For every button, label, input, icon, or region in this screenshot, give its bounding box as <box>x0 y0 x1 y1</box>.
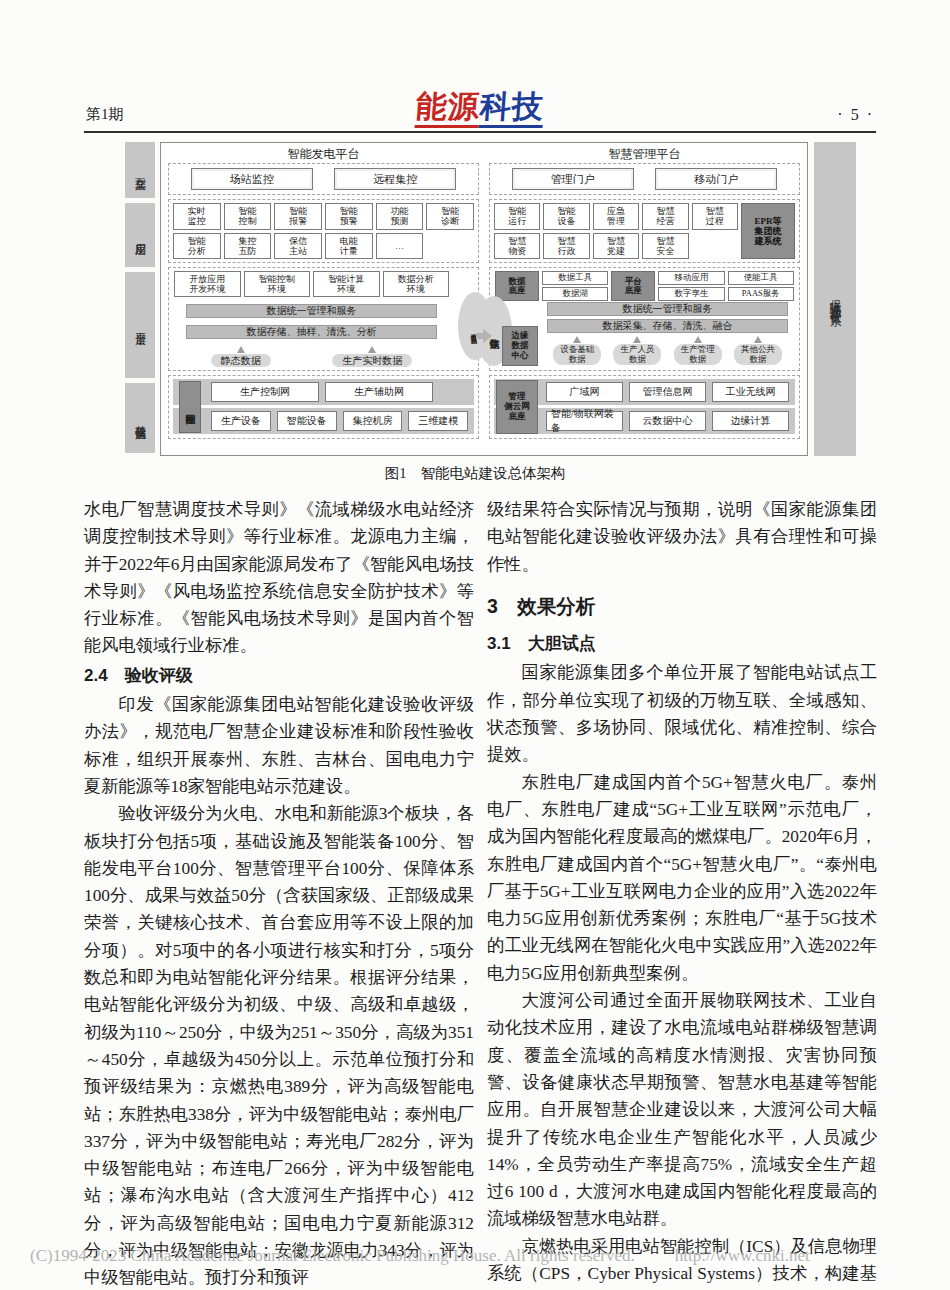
management-platform-title: 智慧管理平台 <box>489 146 800 163</box>
generation-platform-group: 开放应用 开发环境 智能控制 环境 智能计算 环境 数据分析 环境 数据统一管理… <box>168 267 479 371</box>
enabling-tools-stack: 使能工具 PAAS服务 <box>728 271 794 301</box>
generation-infrastructure-group: 控制区 生产控制网 生产辅助网 生产设备 智能设备 集控机房 三维建模 <box>168 375 479 439</box>
section-heading-3-1: 3.1 大胆试点 <box>487 630 877 657</box>
data-storage-bar: 数据存储、抽样、清洗、分析 <box>186 325 437 339</box>
app-box: 应急 管理 <box>593 203 639 230</box>
env-box: 智能控制 环境 <box>244 271 311 297</box>
page-number: · 5 · <box>837 106 874 124</box>
generation-interaction-group: 场站监控 远程集控 <box>168 163 479 195</box>
network-band: 生产控制网 生产辅助网 <box>173 379 474 405</box>
network-band: 广域网 管理信息网 工业无线网 <box>494 379 795 405</box>
app-box: 智慧 过程 <box>692 203 738 230</box>
source-item: 静态数据 <box>211 346 271 367</box>
management-platform-half: 智慧管理平台 管理门户 移动门户 智能 运行 智能 设备 应急 管理 智慧 经营… <box>489 146 800 452</box>
stack-box: 移动应用 <box>658 271 724 285</box>
data-management-bar: 数据统一管理和服务 <box>186 304 437 318</box>
equipment-band: 生产设备 智能设备 集控机房 三维建模 <box>173 408 474 434</box>
equipment-band: 智能/物联网装备 云数据中心 边缘计算 <box>494 408 795 434</box>
architecture-panel: 智能发电平台 场站监控 远程集控 实时 监控 智能 控制 智能 报警 智能 预警… <box>160 142 808 456</box>
net-box: 智能/物联网装备 <box>546 411 623 431</box>
generation-source-row: 静态数据 生产实时数据 <box>180 346 443 367</box>
production-mgmt-data-pill: 生产管理 数据 <box>674 344 722 365</box>
layer-interaction: 交互层 <box>125 142 155 198</box>
data-collection-bar: 数据采集、存储、清洗、融合 <box>547 319 788 333</box>
paragraph: 水电厂智慧调度技术导则》《流域梯级水电站经济调度控制技术导则》等行业标准。龙源电… <box>84 496 474 660</box>
management-portal-box: 管理门户 <box>512 168 634 190</box>
app-box: 智能 运行 <box>494 203 540 230</box>
right-text-column: 级结果符合实际情况与预期，说明《国家能源集团电站智能化建设验收评级办法》具有合理… <box>487 496 877 1290</box>
data-base-box: 数据 底座 <box>495 271 539 301</box>
architecture-figure: 交互层 应用层 平台层 基础设施层 智能发电平台 场站监控 远程集控 实时 监控… <box>125 142 856 456</box>
app-box: 智慧 安全 <box>642 233 688 260</box>
guarantee-evaluation-system-bar: 保障体系和评价体系 <box>814 142 856 456</box>
net-box: 管理信息网 <box>629 382 706 402</box>
up-arrow-icon <box>237 346 245 353</box>
other-public-data-pill: 其他公共 数据 <box>734 344 782 365</box>
app-box: 集控 五防 <box>224 233 272 260</box>
stack-box: 数据湖 <box>542 287 608 301</box>
figure-caption-title: 智能电站建设总体架构 <box>420 465 565 481</box>
cnki-url: http://www.cnki.net <box>675 1246 810 1266</box>
data-flow-arrow-icon <box>476 329 492 343</box>
cnki-footer: (C)1994-2023 China Academic Journal Elec… <box>30 1246 920 1266</box>
management-infrastructure-group: 管理 侧云网 底座 广域网 管理信息网 工业无线网 智能/物联网装备 云数据中心… <box>489 375 800 439</box>
generation-platform-title: 智能发电平台 <box>168 146 479 163</box>
copyright-text: (C)1994-2023 China Academic Journal Elec… <box>30 1246 635 1266</box>
remote-control-box: 远程集控 <box>334 168 456 190</box>
management-platform-content: 数据统一管理和服务 数据采集、存储、清洗、融合 设备基础 数据 生产人员 数据 <box>541 302 794 365</box>
issue-number: 第1期 <box>86 105 124 124</box>
app-box: 功能 预测 <box>376 203 424 230</box>
layer-platform: 平台层 <box>125 272 155 378</box>
station-monitoring-box: 场站监控 <box>191 168 313 190</box>
net-box: 云数据中心 <box>629 411 706 431</box>
layer-application: 应用层 <box>125 203 155 267</box>
left-text-column: 水电厂智慧调度技术导则》《流域梯级水电站经济调度控制技术导则》等行业标准。龙源电… <box>84 496 474 1290</box>
net-box: 三维建模 <box>408 411 468 431</box>
platform-base-box: 平台 底座 <box>611 271 655 301</box>
app-box: 智能 控制 <box>224 203 272 230</box>
app-box: 智慧 物资 <box>494 233 540 260</box>
net-box: 广域网 <box>546 382 623 402</box>
net-box: 生产控制网 <box>211 382 319 402</box>
generation-application-group: 实时 监控 智能 控制 智能 报警 智能 预警 功能 预测 智能 诊断 智能 分… <box>168 199 479 263</box>
figure-caption-label: 图1 <box>385 465 407 481</box>
app-box: 智慧 经营 <box>642 203 688 230</box>
app-box: 智能 诊断 <box>426 203 474 230</box>
app-box: 实时 监控 <box>173 203 221 230</box>
environment-row: 开放应用 开发环境 智能控制 环境 智能计算 环境 数据分析 环境 <box>174 271 449 297</box>
source-item: 其他公共 数据 <box>734 336 782 365</box>
edge-data-center-box: 边缘 数据 中心 <box>502 326 538 366</box>
paragraph: 印发《国家能源集团电站智能化建设验收评级办法》，规范电厂智慧企业建设标准和阶段性… <box>84 691 474 800</box>
up-arrow-icon <box>633 336 641 343</box>
up-arrow-icon <box>573 336 581 343</box>
stack-box: 数据工具 <box>542 271 608 285</box>
management-application-group: 智能 运行 智能 设备 应急 管理 智慧 经营 智慧 过程 EPR等 集团统 建… <box>489 199 800 263</box>
epr-group-systems-box: EPR等 集团统 建系统 <box>741 203 795 259</box>
data-management-bar: 数据统一管理和服务 <box>547 302 788 316</box>
app-box: 智能 预警 <box>325 203 373 230</box>
app-box: 电能 计量 <box>325 233 373 260</box>
mobile-apps-stack: 移动应用 数字孪生 <box>658 271 724 301</box>
env-box: 数据分析 环境 <box>383 271 450 297</box>
source-item: 生产实时数据 <box>332 346 412 367</box>
app-box: 保信 主站 <box>274 233 322 260</box>
section-heading-2-4: 2.4 验收评级 <box>84 662 474 689</box>
stack-box: PAAS服务 <box>728 287 794 301</box>
layer-infrastructure: 基础设施层 <box>125 383 155 453</box>
app-box: 智能 设备 <box>543 203 589 230</box>
net-box: 集控机房 <box>343 411 403 431</box>
device-base-data-pill: 设备基础 数据 <box>553 344 601 365</box>
generation-platform-content: 开放应用 开发环境 智能控制 环境 智能计算 环境 数据分析 环境 数据统一管理… <box>174 271 449 367</box>
journal-logo-tech: 科技 <box>479 89 546 128</box>
journal-logo: 能源科技 <box>415 86 546 128</box>
paragraph: 级结果符合实际情况与预期，说明《国家能源集团电站智能化建设验收评级办法》具有合理… <box>487 496 877 578</box>
management-cloud-base-box: 管理 侧云网 底座 <box>496 380 538 434</box>
source-item: 生产管理 数据 <box>674 336 722 365</box>
stack-box: 使能工具 <box>728 271 794 285</box>
up-arrow-icon <box>694 336 702 343</box>
layer-labels-column: 交互层 应用层 平台层 基础设施层 <box>125 142 155 456</box>
app-box: 智能 分析 <box>173 233 221 260</box>
app-box-ellipsis: … <box>376 233 424 260</box>
net-box: 生产设备 <box>211 411 271 431</box>
up-arrow-icon <box>754 336 762 343</box>
control-zone-box: 控制区 <box>179 381 201 433</box>
up-arrow-icon <box>368 346 376 353</box>
production-staff-data-pill: 生产人员 数据 <box>613 344 661 365</box>
static-data-pill: 静态数据 <box>211 354 271 367</box>
platform-base-row: 数据 底座 数据工具 数据湖 平台 底座 移动应用 数字孪生 使能工具 PAAS… <box>495 271 794 299</box>
paragraph: 大渡河公司通过全面开展物联网技术、工业自动化技术应用，建设了水电流域电站群梯级智… <box>487 987 877 1233</box>
net-box: 智能设备 <box>277 411 337 431</box>
figure-caption: 图1智能电站建设总体架构 <box>0 464 950 483</box>
env-box: 智能计算 环境 <box>313 271 380 297</box>
data-tools-stack: 数据工具 数据湖 <box>542 271 608 301</box>
app-box: 智慧 行政 <box>543 233 589 260</box>
app-box: 智慧 党建 <box>593 233 639 260</box>
net-box: 工业无线网 <box>712 382 789 402</box>
mobile-portal-box: 移动门户 <box>655 168 777 190</box>
net-box: 生产辅助网 <box>325 382 433 402</box>
page-header: 第1期 能源科技 · 5 · <box>84 76 876 133</box>
env-box: 开放应用 开发环境 <box>174 271 241 297</box>
realtime-production-data-pill: 生产实时数据 <box>332 354 412 367</box>
stack-box: 数字孪生 <box>658 287 724 301</box>
paragraph: 东胜电厂建成国内首个5G+智慧火电厂。泰州电厂、东胜电厂建成“5G+工业互联网”… <box>487 769 877 987</box>
source-item: 生产人员 数据 <box>613 336 661 365</box>
management-platform-group: 数据 底座 数据工具 数据湖 平台 底座 移动应用 数字孪生 使能工具 PAAS… <box>489 267 800 371</box>
net-box: 边缘计算 <box>712 411 789 431</box>
paragraph: 国家能源集团多个单位开展了智能电站试点工作，部分单位实现了初级的万物互联、全域感… <box>487 659 877 768</box>
source-item: 设备基础 数据 <box>553 336 601 365</box>
management-source-row: 设备基础 数据 生产人员 数据 生产管理 数据 其他公共 数据 <box>547 336 788 365</box>
generation-platform-half: 智能发电平台 场站监控 远程集控 实时 监控 智能 控制 智能 报警 智能 预警… <box>168 146 479 452</box>
paragraph: 验收评级分为火电、水电和新能源3个板块，各板块打分包括5项，基础设施及智能装备1… <box>84 800 474 1290</box>
journal-logo-energy: 能源 <box>415 89 482 128</box>
app-box: 智能 报警 <box>274 203 322 230</box>
management-interaction-group: 管理门户 移动门户 <box>489 163 800 195</box>
section-heading-3: 3 效果分析 <box>487 593 877 620</box>
